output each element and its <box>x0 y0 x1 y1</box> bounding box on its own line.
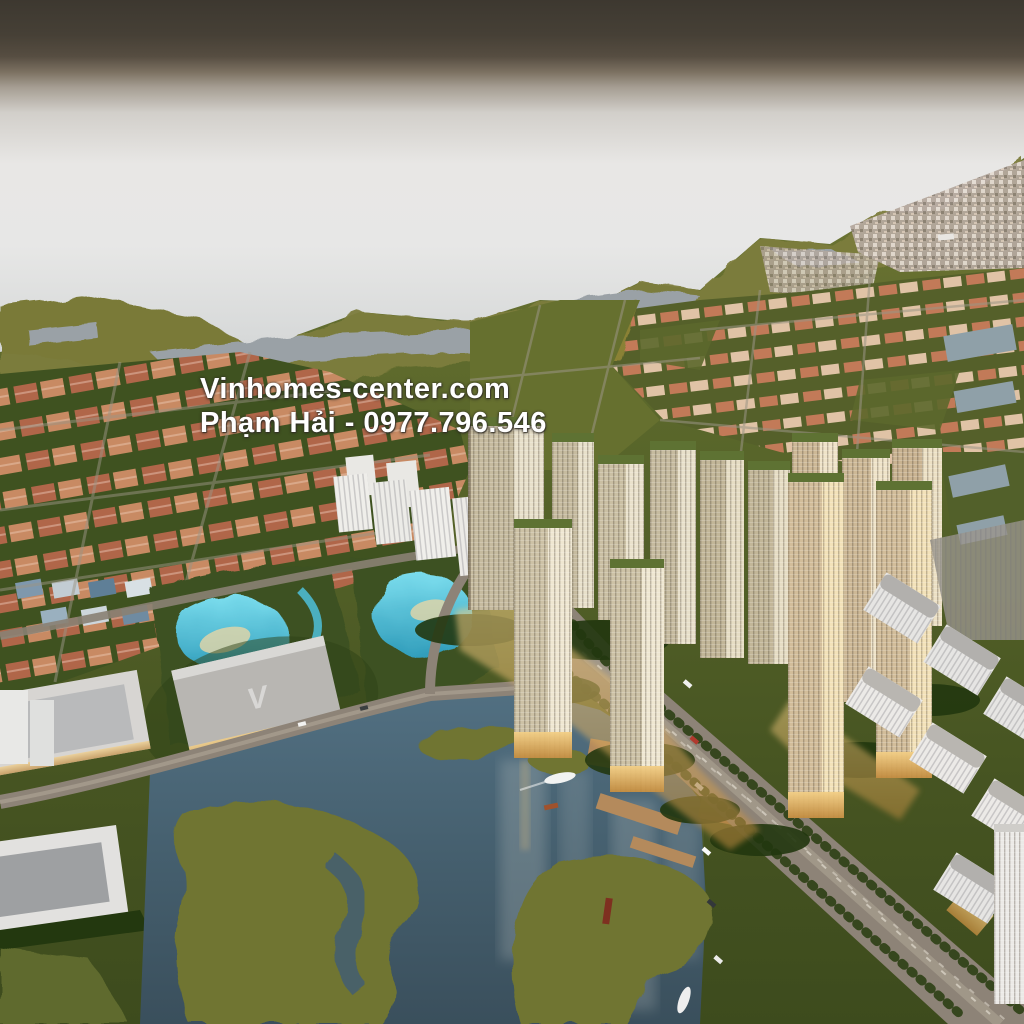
tower <box>788 473 844 818</box>
tower <box>700 451 744 658</box>
tower <box>748 461 790 664</box>
tower <box>610 559 664 792</box>
tower <box>514 519 572 758</box>
scene: V <box>0 0 1024 1024</box>
aerial-render-image: V <box>0 0 1024 1024</box>
right-edge-tower <box>994 824 1024 1004</box>
